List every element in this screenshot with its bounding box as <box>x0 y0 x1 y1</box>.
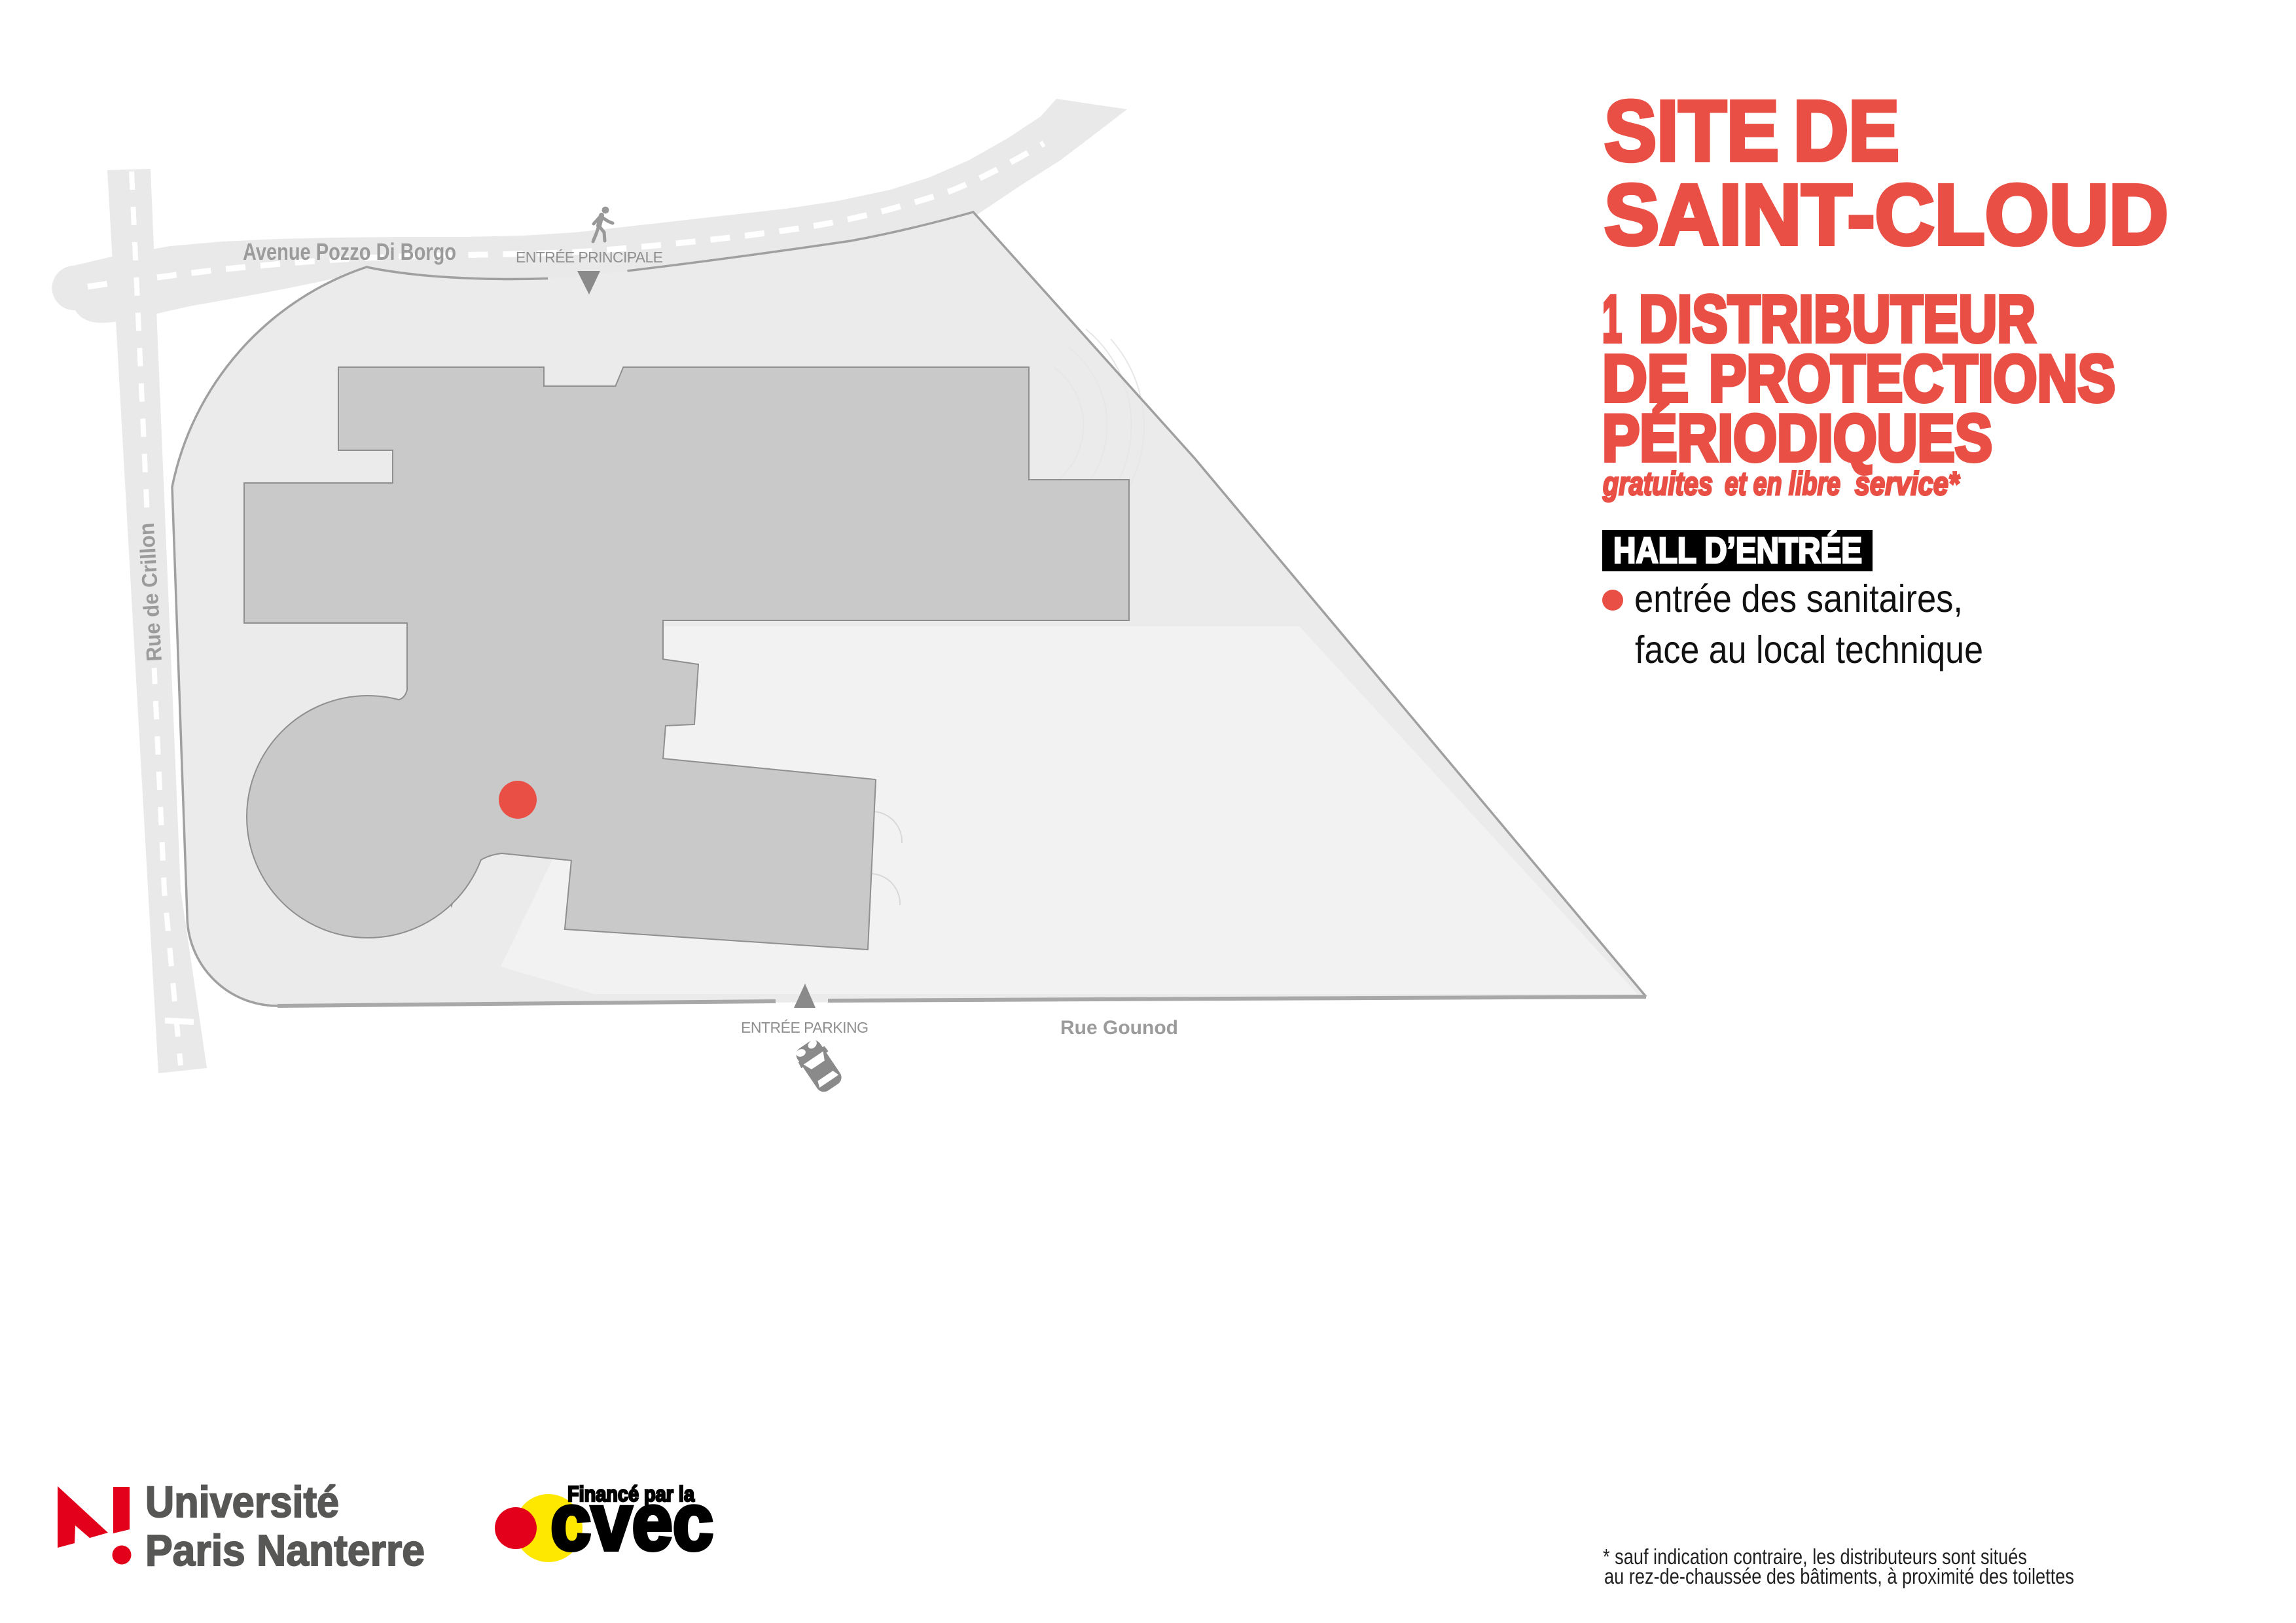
svg-text:au rez-de-chaussée des bâtimen: au rez-de-chaussée des bâtiments, à prox… <box>1604 1564 2074 1588</box>
svg-text:service*: service* <box>1855 465 1960 502</box>
svg-text:Paris Nanterre: Paris Nanterre <box>145 1526 425 1575</box>
svg-text:Université: Université <box>145 1478 339 1527</box>
svg-text:et en libre: et en libre <box>1725 465 1840 502</box>
svg-text:entrée des sanitaires,: entrée des sanitaires, <box>1634 577 1963 620</box>
svg-text:HALL D’ENTRÉE: HALL D’ENTRÉE <box>1613 529 1862 571</box>
svg-text:Rue Gounod: Rue Gounod <box>1060 1017 1178 1039</box>
svg-text:SITE: SITE <box>1604 82 1779 179</box>
svg-text:ENTRÉE PARKING: ENTRÉE PARKING <box>741 1019 869 1036</box>
svg-text:ENTRÉE PRINCIPALE: ENTRÉE PRINCIPALE <box>516 249 663 266</box>
svg-text:SAINT-CLOUD: SAINT-CLOUD <box>1604 166 2168 262</box>
svg-text:face au local technique: face au local technique <box>1635 628 1983 671</box>
svg-text:cvec: cvec <box>550 1478 713 1567</box>
svg-text:gratuites: gratuites <box>1602 465 1713 502</box>
svg-text:DE: DE <box>1793 82 1899 179</box>
svg-text:Avenue Pozzo Di Borgo: Avenue Pozzo Di Borgo <box>243 238 456 265</box>
svg-text:PÉRIODIQUES: PÉRIODIQUES <box>1602 402 1992 475</box>
